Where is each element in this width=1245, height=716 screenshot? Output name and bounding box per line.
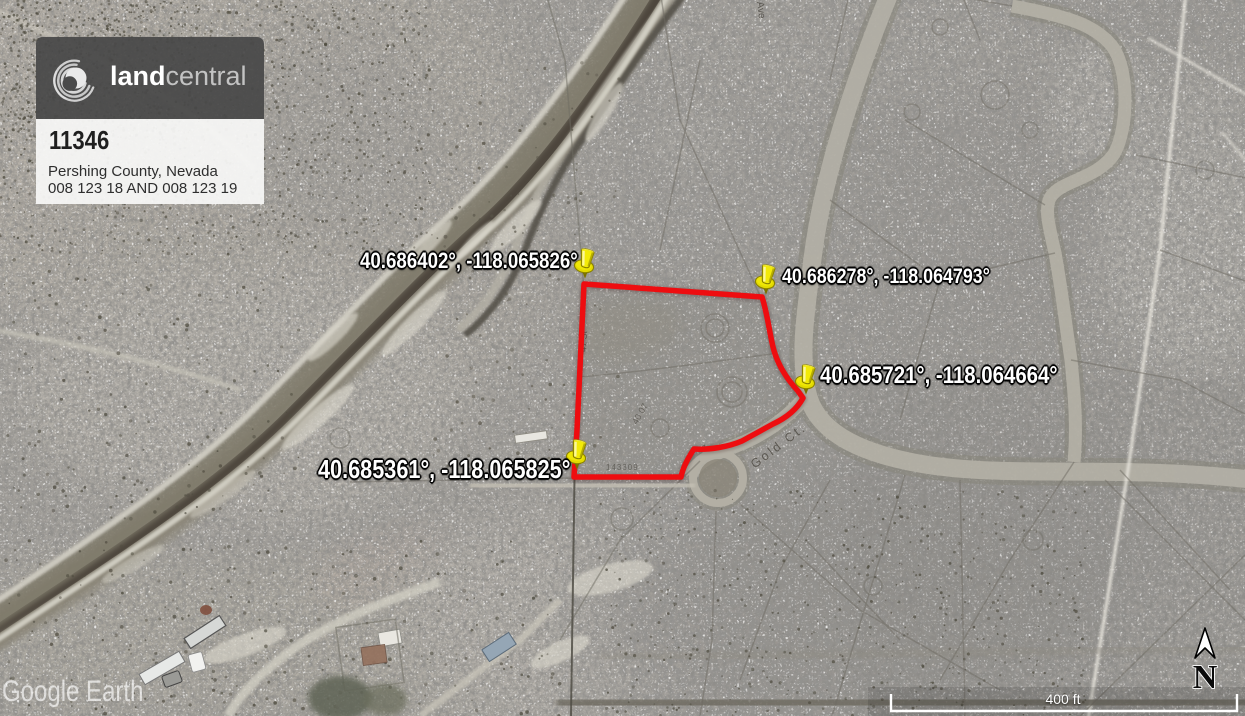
svg-text:143309: 143309 bbox=[606, 463, 639, 472]
svg-text:Ave: Ave bbox=[754, 1, 767, 20]
